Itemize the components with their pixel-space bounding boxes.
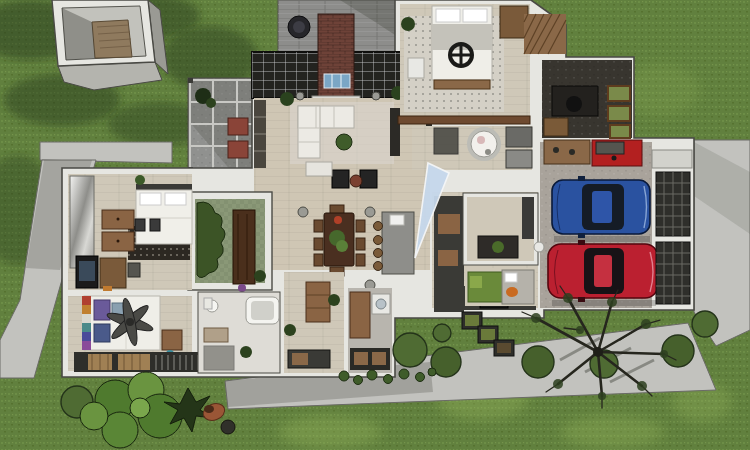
wood-nook xyxy=(524,14,566,54)
shower xyxy=(204,346,234,370)
floor-plant xyxy=(336,134,352,150)
striped-headboard xyxy=(82,296,91,350)
courtyard-atrium xyxy=(188,192,272,292)
ceiling-fan xyxy=(450,44,472,66)
hall-plant xyxy=(328,294,340,306)
tree-trunk xyxy=(593,347,603,357)
pergola xyxy=(188,78,262,172)
garage-doors xyxy=(652,150,692,304)
round-side-table xyxy=(350,175,362,187)
workbench xyxy=(544,140,590,164)
wood-cabinet xyxy=(438,214,460,234)
cut-wall-beam xyxy=(398,116,530,124)
nightstand xyxy=(162,330,182,350)
console-table xyxy=(306,162,332,176)
bedroom-northwest xyxy=(68,174,192,291)
orange-chair xyxy=(506,287,518,297)
entry-hall xyxy=(284,272,344,373)
chair xyxy=(150,219,160,231)
study-nook xyxy=(463,193,538,265)
study-dark-wall xyxy=(522,197,534,239)
wood-cabinet xyxy=(438,250,458,266)
kids-room xyxy=(465,268,536,306)
chair xyxy=(135,219,145,231)
shower-glass xyxy=(434,128,458,154)
toy xyxy=(238,284,246,292)
floorplan-render xyxy=(0,0,750,450)
patio-chair xyxy=(228,118,248,135)
office-chair xyxy=(566,96,582,112)
table-bowl xyxy=(334,216,342,224)
bedroom-north xyxy=(398,4,530,124)
patio-chair xyxy=(228,141,248,158)
render-canvas xyxy=(0,0,750,450)
lounge-chair xyxy=(408,58,424,78)
wall-art-frames xyxy=(608,86,630,138)
hall-closet xyxy=(306,282,330,322)
sideboard xyxy=(544,118,568,136)
bath-vanity xyxy=(506,127,532,147)
plant xyxy=(401,17,415,31)
armchair xyxy=(360,170,377,188)
blue-car xyxy=(552,176,650,242)
plant xyxy=(135,175,145,185)
armchair xyxy=(332,170,349,188)
hall-plant xyxy=(284,324,296,336)
bath-plant xyxy=(240,346,252,358)
blue-skylight xyxy=(324,74,350,88)
mudroom-laundry xyxy=(348,288,392,373)
tv-cabinet xyxy=(390,108,400,156)
bed-bench xyxy=(434,80,490,89)
glass-roof-panel xyxy=(70,176,94,268)
stump xyxy=(221,420,235,434)
lower-deck-cutaway xyxy=(74,352,206,372)
bed xyxy=(136,184,192,244)
garden-shed xyxy=(52,0,168,90)
bathroom-west xyxy=(198,292,280,373)
bedroom-southwest xyxy=(68,296,206,372)
wall-column-cap xyxy=(534,242,544,252)
wardrobe xyxy=(500,6,528,38)
garage xyxy=(534,140,692,308)
tall-cabinet xyxy=(350,292,370,338)
kitchen-island xyxy=(374,212,415,274)
corner-plant xyxy=(280,92,294,106)
garden-bench xyxy=(233,210,255,284)
vanity xyxy=(204,328,228,342)
round-tub xyxy=(471,131,497,157)
study-plant xyxy=(492,241,504,253)
tool-cabinet-top xyxy=(596,142,624,154)
table-plant xyxy=(336,240,348,252)
